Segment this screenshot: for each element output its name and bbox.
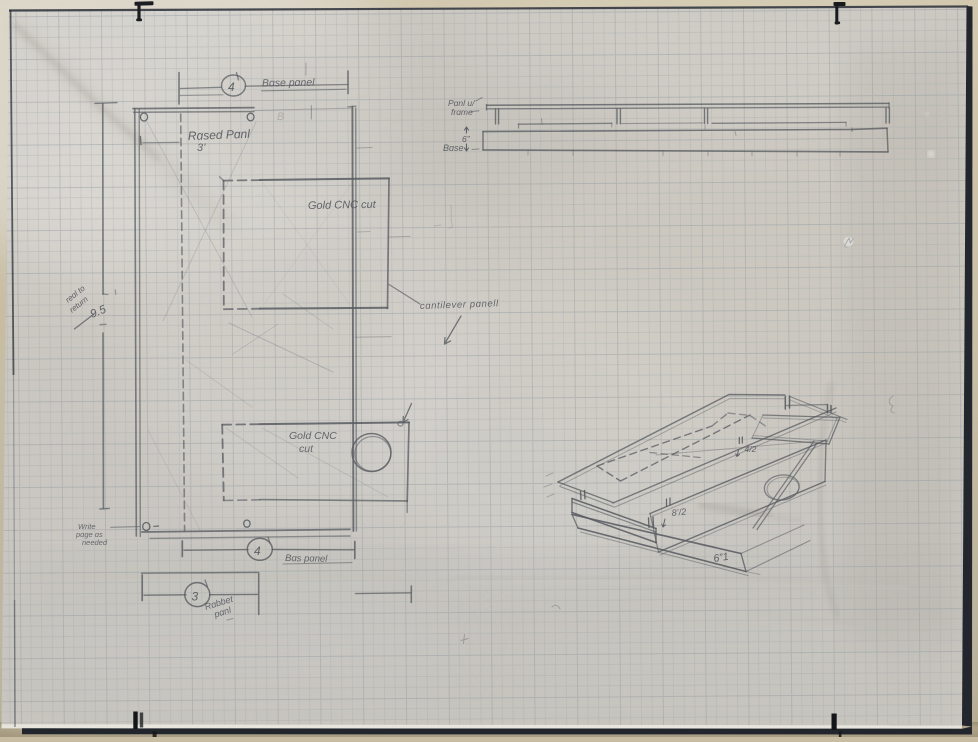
svg-text:B: B bbox=[277, 111, 284, 123]
svg-text:Gοld CNC: Gοld CNC bbox=[289, 430, 337, 442]
svg-text:Rɑsed Pɑnl: Rɑsed Pɑnl bbox=[188, 127, 251, 143]
svg-text:Bɑse pɑnel: Bɑse pɑnel bbox=[262, 77, 315, 90]
svg-text:4: 4 bbox=[228, 80, 235, 94]
svg-text:6”: 6” bbox=[462, 134, 471, 144]
svg-text:8’/2: 8’/2 bbox=[671, 507, 686, 518]
svg-text:frɑme: frɑme bbox=[451, 107, 473, 117]
svg-text:Bɑse: Bɑse bbox=[443, 143, 464, 153]
svg-text:3: 3 bbox=[192, 590, 199, 604]
svg-text:6”1: 6”1 bbox=[713, 551, 730, 565]
svg-text:4: 4 bbox=[254, 544, 261, 558]
svg-text:needed: needed bbox=[82, 538, 108, 547]
svg-text:4/2: 4/2 bbox=[745, 444, 757, 454]
svg-text:3’: 3’ bbox=[197, 142, 206, 154]
svg-text:Gοld CNC cut: Gοld CNC cut bbox=[308, 199, 377, 212]
